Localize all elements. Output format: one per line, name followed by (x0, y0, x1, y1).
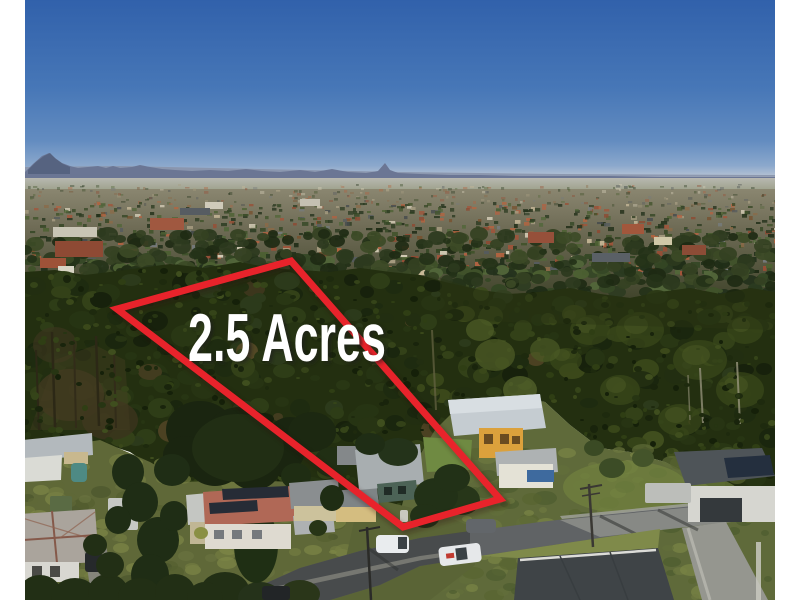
svg-text:2.5 Acres: 2.5 Acres (188, 301, 386, 377)
